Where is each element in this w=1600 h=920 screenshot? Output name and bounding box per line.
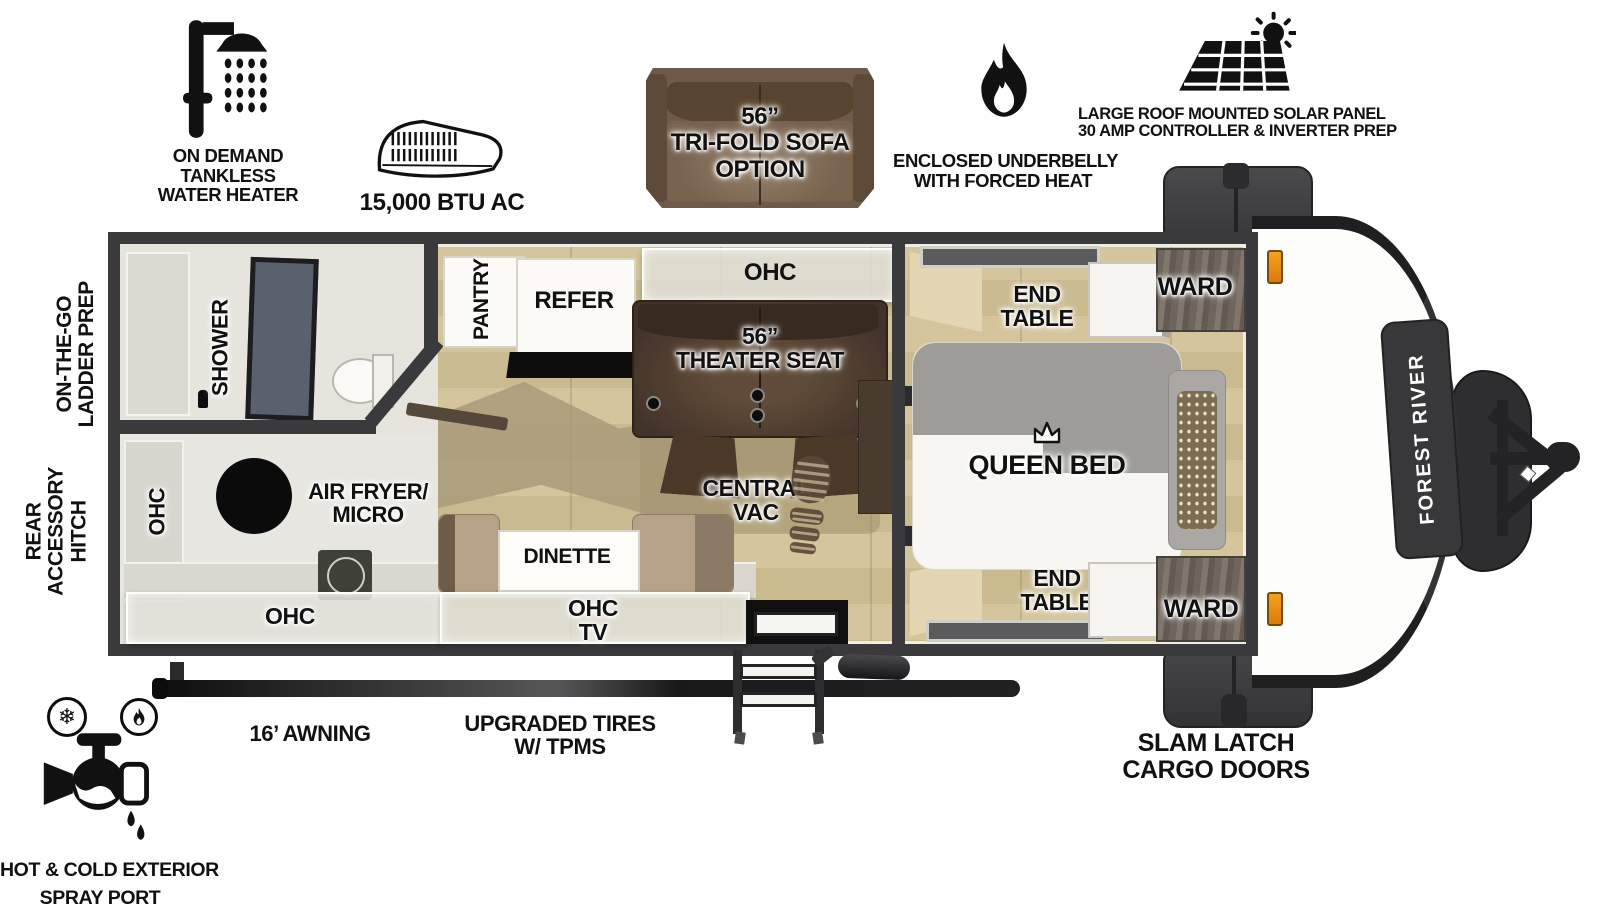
ward-bottom-label: WARD xyxy=(1146,596,1256,623)
bathroom-wall-right xyxy=(424,244,438,348)
burner-ring xyxy=(327,557,365,595)
bootprint-icon xyxy=(773,447,842,565)
faucet-icon xyxy=(38,733,164,845)
hitch-jack-post xyxy=(1497,400,1508,536)
door-hinge xyxy=(905,526,912,546)
solar-panel-icon xyxy=(1168,10,1296,104)
awning-bar xyxy=(160,680,1020,697)
ladder-prep-label: ON-THE-GO LADDER PREP xyxy=(54,268,99,440)
flame-small-icon xyxy=(129,705,149,729)
theater-seat-label: 56” THEATER SEAT xyxy=(634,324,886,373)
queen-bed-label: QUEEN BED xyxy=(913,451,1181,480)
door-hinge xyxy=(905,386,912,406)
dinette-bench-right xyxy=(632,514,734,594)
headboard xyxy=(1168,370,1226,550)
flame-icon xyxy=(962,24,1046,138)
refer-base xyxy=(506,352,642,378)
shower-icon xyxy=(183,16,281,144)
theater-seat: 56” THEATER SEAT xyxy=(632,300,888,438)
ohc-kitchen-bottom-label: OHC xyxy=(230,604,350,628)
cargo-latch-icon xyxy=(1223,163,1249,189)
shower-glass-panel xyxy=(245,257,319,421)
snowflake-icon: ❄ xyxy=(58,704,76,730)
awning-bracket xyxy=(170,662,184,682)
awning-endcap xyxy=(152,678,168,699)
underbelly-label: ENCLOSED UNDERBELLY WITH FORCED HEAT xyxy=(893,151,1113,190)
brand-name: FOREST RIVER xyxy=(1405,353,1440,526)
ohc-tv-label: OHC TV xyxy=(528,596,658,645)
queen-bed: QUEEN BED xyxy=(912,342,1182,570)
entry-door-threshold xyxy=(746,600,848,644)
theater-cupholder xyxy=(648,398,659,409)
marker-light-bottom xyxy=(1267,592,1283,626)
theater-cupholder xyxy=(752,410,763,421)
sofa-option-label: 56” TRI-FOLD SOFA OPTION xyxy=(646,104,874,183)
ohc-kitchen-label: OHC xyxy=(145,477,168,547)
cargo-latch-stem xyxy=(1234,188,1238,232)
bedroom-window-bottom xyxy=(926,620,1106,642)
step-foot xyxy=(812,731,824,744)
dinette-bench-left xyxy=(438,514,500,594)
spray-port-label: HOT & COLD EXTERIOR SPRAY PORT xyxy=(0,856,200,913)
cargo-latch-icon xyxy=(1221,694,1247,728)
propane-cover xyxy=(1452,370,1532,572)
water-heater-label: ON DEMAND TANKLESS WATER HEATER xyxy=(138,146,318,205)
crown-icon xyxy=(1032,421,1062,445)
flame-badge xyxy=(120,698,158,736)
bedroom-divider-wall xyxy=(892,244,905,644)
theater-cupholder xyxy=(752,390,763,401)
marker-light-top xyxy=(1267,250,1283,284)
step-tread xyxy=(740,692,817,707)
bedroom-window-top xyxy=(920,246,1100,268)
tri-fold-sofa-option: 56” TRI-FOLD SOFA OPTION xyxy=(646,68,874,208)
ac-unit-icon xyxy=(372,110,514,188)
ohc-galley-label: OHC xyxy=(710,260,830,285)
ward-top-label: WARD xyxy=(1140,274,1250,301)
step-foot xyxy=(734,731,746,744)
entry-steps xyxy=(733,648,825,740)
bench-backrest xyxy=(695,515,733,593)
step-tread xyxy=(740,664,817,679)
cargo-doors-label: SLAM LATCH CARGO DOORS xyxy=(1106,730,1326,783)
tires-label: UPGRADED TIRES W/ TPMS xyxy=(450,712,670,759)
headboard-panel xyxy=(1177,391,1217,529)
side-cabinet xyxy=(858,380,894,514)
awning-label: 16’ AWNING xyxy=(225,722,395,745)
dinette-label: DINETTE xyxy=(498,546,636,568)
hitch-coupler xyxy=(1546,442,1580,472)
floorplan-body: SHOWER OHC AIR FRYER/ MICRO OHC PANTRY R… xyxy=(108,232,1258,656)
awning-arm xyxy=(838,654,911,680)
rear-hitch-label: REAR ACCESSORY HITCH xyxy=(24,445,91,617)
solar-label: LARGE ROOF MOUNTED SOLAR PANEL 30 AMP CO… xyxy=(1078,106,1378,141)
snowflake-badge: ❄ xyxy=(47,697,87,737)
refer-label: REFER xyxy=(516,288,632,313)
pantry-label: PANTRY xyxy=(471,244,493,354)
bench-backrest xyxy=(439,515,455,593)
entry-step-well xyxy=(754,612,838,636)
ac-label: 15,000 BTU AC xyxy=(352,190,532,215)
shower-label: SHOWER xyxy=(208,283,231,413)
bathroom-vanity xyxy=(126,252,190,416)
bathroom-wall-bottom xyxy=(120,420,376,434)
air-fryer-label: AIR FRYER/ MICRO xyxy=(278,480,458,527)
end-table-top-label: END TABLE xyxy=(972,282,1102,331)
rv-floorplan-diagram: ON DEMAND TANKLESS WATER HEATER 15,000 B… xyxy=(0,0,1600,920)
